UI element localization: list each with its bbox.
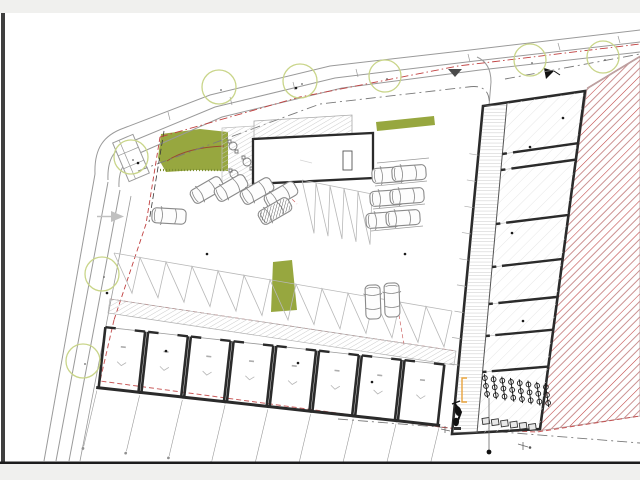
garage-right-wall [438,365,445,426]
page-left-edge [1,13,5,462]
car-outline [391,163,426,184]
garage-unit [395,360,446,426]
dimension-drop [169,399,182,456]
left-road-inner-line [69,190,120,461]
garage-floor-mark [117,362,126,366]
parked-car [389,186,424,207]
garage-back-wall [96,388,141,393]
door-jamb [496,223,500,224]
garage-floor-mark [160,366,169,370]
survey-dot [297,362,300,365]
garage-back-wall [267,406,312,411]
locker-box [519,422,527,429]
dimension-drop-dot [167,456,170,459]
garage-unit [267,346,318,412]
corridor-tick [454,311,463,313]
tree-trunk-dot [386,78,388,80]
tree-trunk-dot [220,89,222,91]
page-top-bar [0,0,640,13]
north-arrow-tail [554,71,560,75]
green-strip-mid [376,116,435,131]
car-outline [363,285,383,320]
locker-box [529,424,537,431]
tree-trunk-dot [604,59,606,61]
tree-trunk-dot [301,83,303,85]
survey-dot [295,87,298,90]
garage-back-wall [224,402,269,407]
tree-canopy-circle [66,344,100,378]
corridor-tick [462,232,471,234]
stall-zigzag [302,180,372,245]
corridor-tick [452,337,461,339]
garage-back-wall [395,421,440,426]
garage-floor-mark [330,385,339,389]
locker-box [491,419,499,426]
dimension-drop [126,395,139,452]
road-direction-arrow [111,211,124,222]
garage-label-mark [292,365,297,367]
corridor-tick [459,259,468,261]
garage-unit [310,350,361,416]
page-divider-line [0,462,640,465]
garage-floor-mark [416,395,425,399]
tree-canopy-circle [283,64,317,98]
survey-dot [371,381,374,384]
dimension-drop [84,390,97,447]
survey-dot [206,253,209,256]
garage-label-mark [249,360,254,362]
survey-dot [511,232,514,235]
survey-dot [529,146,532,149]
tree-trunk-dot [531,62,533,64]
garage-unit [224,341,275,407]
dimension-tick-cross [518,442,528,450]
left-road-outer-edge [44,174,95,461]
tree-trunk-dot [84,363,86,365]
tree-canopy-circle [202,70,236,104]
dimension-drop [255,409,268,466]
survey-dot [522,320,525,323]
dimension-dot [529,446,532,449]
survey-dot [562,117,565,120]
garage-label-mark [121,346,126,348]
left-road-mid-line [56,182,108,461]
survey-dot [137,162,140,165]
parked-car [391,163,426,184]
tree-canopy-circle [514,44,546,76]
dimension-drop [212,404,225,461]
locker-box [501,420,509,427]
locker-box [510,421,518,428]
door-jamb [501,169,505,170]
page-bottom-bar[interactable] [0,464,640,480]
car-outline [382,283,402,318]
garage-door-line [244,342,263,344]
survey-dot [404,253,407,256]
survey-dot [165,350,168,353]
green-strip-stalls [271,260,297,312]
garage-door-line [116,328,135,330]
parked-car [382,283,402,318]
garage-door-line [201,338,220,340]
stall-divider [377,158,429,163]
garage-unit [96,327,147,393]
north-arrow-head [544,68,554,79]
survey-dot [106,292,109,295]
garage-floor-mark [373,390,382,394]
north-arrow-mark [544,68,560,79]
parked-car [152,206,187,226]
parked-car [385,208,420,229]
garage-back-wall [353,416,398,421]
garage-label-mark [206,355,211,357]
garage-label-mark [334,370,339,372]
garage-back-wall [139,392,184,397]
car-outline [385,208,420,229]
garage-door-line [159,333,178,335]
garage-unit [353,355,404,421]
garage-back-wall [182,397,227,402]
dimension-teardrop [487,450,492,455]
corridor-tick [464,206,473,208]
cafe-building-block [222,115,373,187]
garage-door-line [372,357,391,359]
site-plan-scan: Scanned architectural site plan — parkin… [0,0,640,480]
cafe-building-outline [253,133,373,184]
garage-label-mark [420,379,425,381]
dimension-drop-dot [124,452,127,455]
stall-baseline [302,180,372,194]
motorcycle-stand [454,427,461,430]
parked-car [363,285,383,320]
corridor-tick [469,154,478,156]
tree-canopy-circle [369,60,401,92]
garage-unit [139,332,190,398]
garage-label-mark [377,374,382,376]
garage-floor-mark [202,371,211,375]
tree-trunk-dot [103,276,105,278]
garage-unit [182,336,233,402]
corridor-tick [457,285,466,287]
car-outline [152,206,187,226]
corridor-tick [467,180,476,182]
garage-door-line [287,347,306,349]
door-jamb [502,153,507,154]
garage-back-wall [310,411,355,416]
car-outline [389,186,424,207]
tree-trunk-dot [132,159,134,161]
garage-floor-mark [245,376,254,380]
garage-door-line [330,352,349,354]
garage-floor-mark [288,381,297,385]
